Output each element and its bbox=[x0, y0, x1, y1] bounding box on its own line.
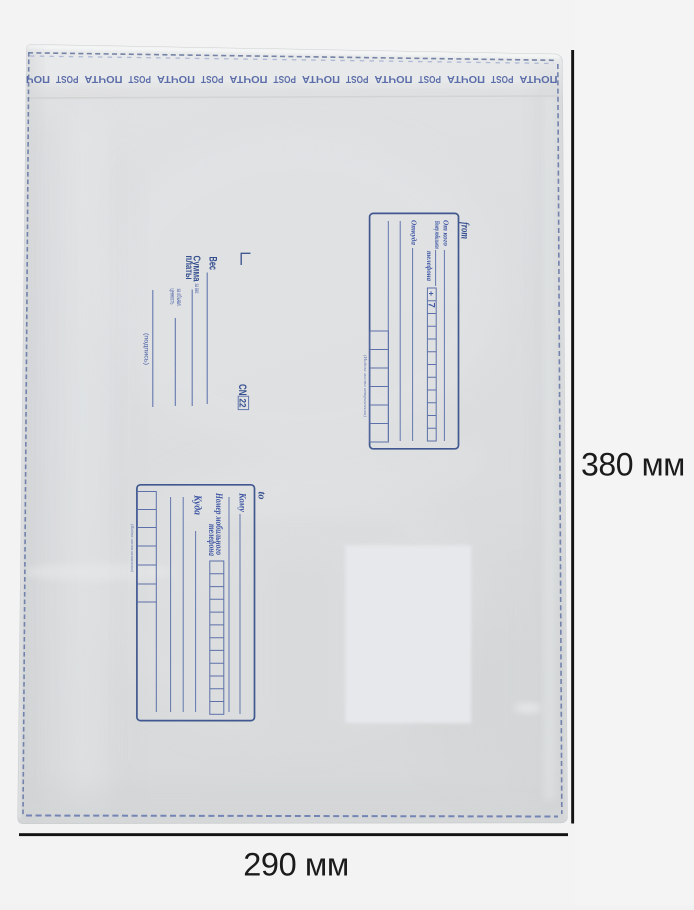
svg-text:380 мм: 380 мм bbox=[581, 447, 685, 483]
svg-text:CN: CN bbox=[236, 384, 248, 396]
svg-text:Вес: Вес bbox=[207, 257, 219, 271]
svg-text:Куда: Куда bbox=[191, 494, 202, 515]
svg-text:(подпись): (подпись) bbox=[143, 333, 150, 365]
svg-text:От кого: От кого bbox=[442, 220, 450, 246]
svg-text:платы: платы bbox=[183, 256, 195, 280]
svg-text:to: to bbox=[256, 492, 268, 500]
svg-text:ценность: ценность bbox=[168, 289, 175, 305]
svg-text:from: from bbox=[459, 222, 473, 239]
svg-text:(Индекс места назначения): (Индекс места назначения) bbox=[130, 524, 135, 573]
svg-text:Откуда: Откуда bbox=[410, 220, 419, 245]
svg-text:(Индекс места отправления): (Индекс места отправления) bbox=[363, 355, 368, 418]
svg-text:Кому: Кому bbox=[238, 492, 248, 513]
svg-text:телефона: телефона bbox=[207, 524, 217, 556]
svg-text:+: + bbox=[427, 291, 437, 296]
svg-text:22: 22 bbox=[237, 399, 248, 408]
svg-text:290 мм: 290 мм bbox=[243, 847, 349, 883]
svg-text:7: 7 bbox=[426, 303, 437, 308]
svg-text:Номер мобильного: Номер мобильного bbox=[433, 221, 441, 250]
svg-text:за вес: за вес bbox=[193, 284, 200, 294]
svg-text:телефона: телефона bbox=[425, 251, 433, 281]
